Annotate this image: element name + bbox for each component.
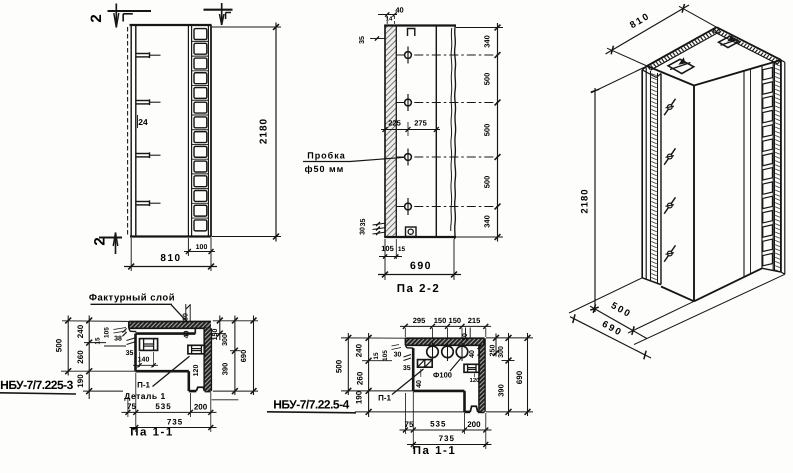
svg-text:35: 35 bbox=[359, 36, 366, 44]
svg-text:35: 35 bbox=[360, 219, 367, 227]
svg-text:500: 500 bbox=[483, 124, 492, 137]
svg-text:300: 300 bbox=[498, 346, 505, 358]
svg-text:П-1: П-1 bbox=[378, 394, 391, 403]
svg-text:15: 15 bbox=[95, 337, 102, 345]
svg-text:735: 735 bbox=[167, 418, 183, 427]
svg-text:30: 30 bbox=[394, 352, 402, 359]
svg-text:150: 150 bbox=[434, 316, 447, 325]
svg-text:200: 200 bbox=[467, 420, 481, 429]
svg-text:340: 340 bbox=[483, 35, 492, 48]
svg-text:535: 535 bbox=[430, 420, 446, 429]
svg-text:810: 810 bbox=[160, 253, 181, 264]
svg-text:П-1: П-1 bbox=[137, 381, 150, 390]
svg-text:14: 14 bbox=[386, 16, 393, 23]
svg-text:38: 38 bbox=[114, 336, 122, 343]
svg-text:40: 40 bbox=[469, 350, 476, 358]
svg-text:2180: 2180 bbox=[580, 188, 591, 213]
svg-text:390: 390 bbox=[220, 363, 229, 376]
svg-text:Па 1-1: Па 1-1 bbox=[413, 445, 456, 457]
svg-text:150: 150 bbox=[449, 316, 462, 325]
svg-text:35: 35 bbox=[403, 365, 411, 372]
svg-text:105: 105 bbox=[104, 327, 111, 338]
svg-text:75: 75 bbox=[405, 420, 414, 429]
svg-text:535: 535 bbox=[155, 402, 171, 411]
svg-text:295: 295 bbox=[413, 316, 426, 325]
svg-text:190: 190 bbox=[355, 390, 364, 404]
svg-text:ф50 мм: ф50 мм bbox=[305, 164, 345, 174]
svg-text:24: 24 bbox=[138, 117, 148, 127]
svg-text:500: 500 bbox=[335, 359, 344, 373]
svg-text:НБУ-7/7.22.5-4: НБУ-7/7.22.5-4 bbox=[273, 398, 349, 412]
svg-text:260: 260 bbox=[76, 350, 85, 364]
svg-text:260: 260 bbox=[355, 371, 364, 385]
svg-text:Пробка: Пробка bbox=[307, 151, 346, 161]
svg-text:15: 15 bbox=[398, 246, 406, 253]
svg-text:2: 2 bbox=[92, 237, 109, 245]
svg-text:100: 100 bbox=[196, 244, 208, 251]
svg-text:690: 690 bbox=[410, 260, 432, 272]
svg-text:150: 150 bbox=[212, 329, 219, 341]
svg-text:120: 120 bbox=[469, 377, 480, 384]
svg-text:105: 105 bbox=[382, 350, 389, 361]
svg-text:15: 15 bbox=[373, 352, 380, 360]
svg-text:Па 1-1: Па 1-1 bbox=[130, 426, 173, 438]
svg-text:НБУ-7/7.225-3: НБУ-7/7.225-3 bbox=[0, 378, 73, 392]
svg-text:215: 215 bbox=[468, 316, 481, 325]
svg-text:275: 275 bbox=[414, 119, 427, 128]
svg-text:105: 105 bbox=[381, 244, 394, 253]
svg-text:225: 225 bbox=[388, 119, 401, 128]
svg-text:300: 300 bbox=[222, 334, 229, 346]
svg-text:735: 735 bbox=[439, 434, 455, 443]
svg-text:40: 40 bbox=[416, 380, 423, 388]
svg-text:Фактурный слой: Фактурный слой bbox=[89, 293, 175, 304]
svg-text:240: 240 bbox=[76, 324, 85, 338]
svg-text:390: 390 bbox=[496, 384, 505, 397]
svg-text:30: 30 bbox=[360, 227, 367, 235]
svg-text:500: 500 bbox=[55, 338, 64, 352]
svg-text:500: 500 bbox=[483, 73, 492, 86]
svg-text:240: 240 bbox=[355, 343, 364, 357]
svg-text:Деталь 1: Деталь 1 bbox=[124, 391, 165, 401]
svg-text:35: 35 bbox=[126, 350, 134, 357]
svg-text:120: 120 bbox=[193, 365, 200, 377]
svg-text:250: 250 bbox=[489, 345, 496, 357]
svg-text:75: 75 bbox=[127, 402, 136, 411]
svg-text:Ф100: Ф100 bbox=[433, 370, 452, 379]
svg-text:690: 690 bbox=[515, 370, 524, 384]
svg-text:2180: 2180 bbox=[259, 118, 270, 144]
svg-text:40: 40 bbox=[184, 331, 191, 339]
svg-text:200: 200 bbox=[194, 402, 208, 411]
svg-text:500: 500 bbox=[483, 176, 492, 189]
svg-text:2: 2 bbox=[88, 14, 105, 22]
svg-text:690: 690 bbox=[239, 350, 248, 363]
svg-text:Па 2-2: Па 2-2 bbox=[397, 283, 440, 295]
svg-text:190: 190 bbox=[76, 374, 85, 388]
svg-text:340: 340 bbox=[483, 215, 492, 228]
